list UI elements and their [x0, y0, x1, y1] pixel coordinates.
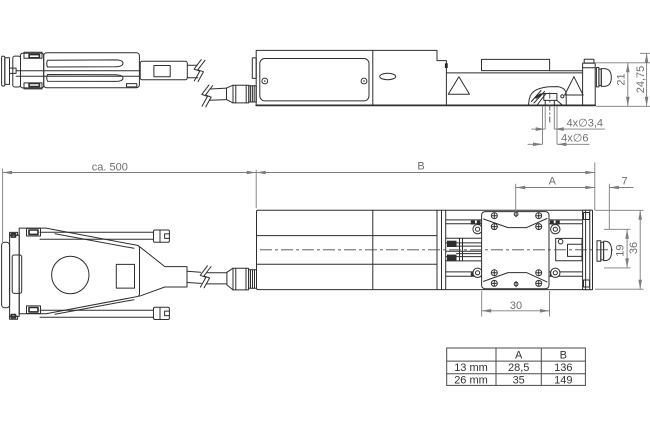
svg-text:B: B [560, 349, 567, 361]
svg-text:26 mm: 26 mm [454, 375, 488, 387]
svg-text:28,5: 28,5 [508, 362, 529, 374]
svg-text:B: B [417, 161, 424, 173]
svg-text:36: 36 [628, 242, 640, 254]
svg-text:35: 35 [513, 375, 525, 387]
svg-text:149: 149 [554, 375, 572, 387]
svg-text:19: 19 [615, 244, 627, 256]
svg-text:30: 30 [510, 300, 522, 312]
svg-text:A: A [515, 349, 523, 361]
svg-text:21: 21 [616, 73, 628, 85]
svg-text:13 mm: 13 mm [454, 362, 488, 374]
svg-text:136: 136 [554, 362, 572, 374]
svg-text:A: A [549, 176, 557, 188]
svg-text:24,75: 24,75 [635, 66, 647, 94]
svg-text:4x∅3,4: 4x∅3,4 [567, 117, 604, 129]
svg-text:7: 7 [622, 175, 628, 187]
svg-text:4x∅6: 4x∅6 [561, 132, 588, 144]
svg-text:ca. 500: ca. 500 [92, 161, 128, 173]
